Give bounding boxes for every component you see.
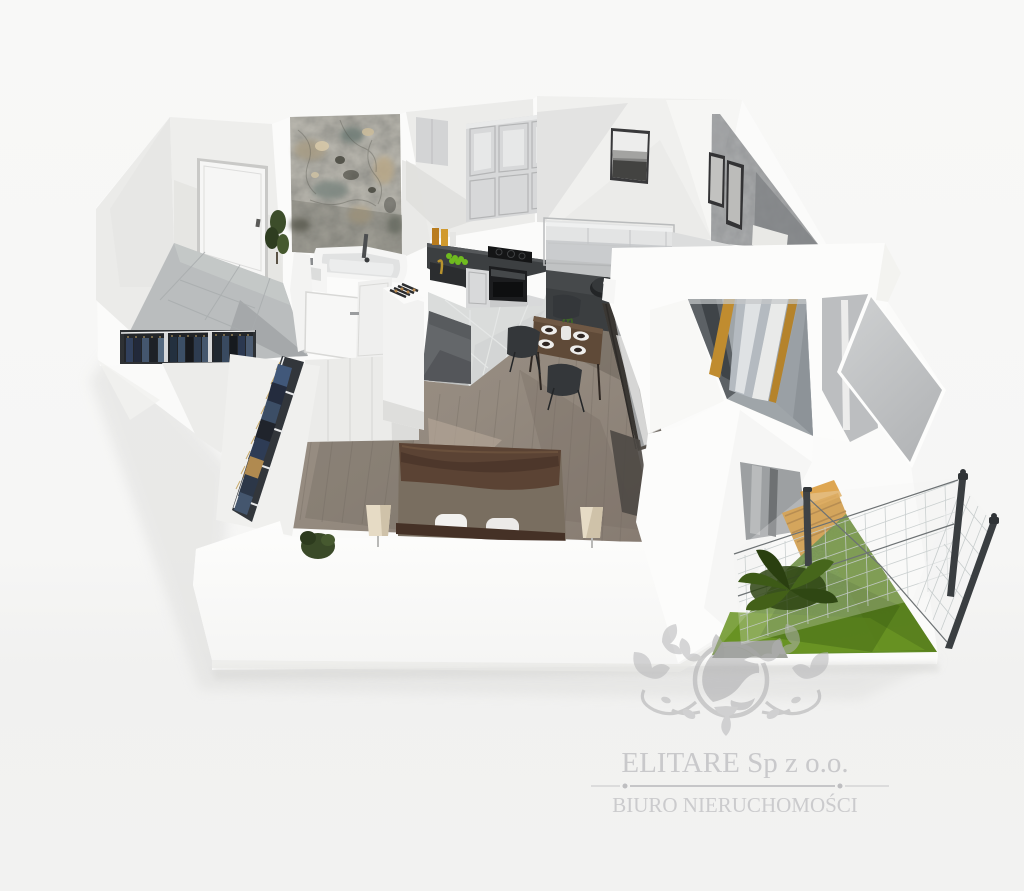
svg-text:ELITARE Sp z o.o.: ELITARE Sp z o.o. (621, 747, 848, 779)
svg-text:BIURO NIERUCHOMOŚCI: BIURO NIERUCHOMOŚCI (612, 793, 858, 817)
